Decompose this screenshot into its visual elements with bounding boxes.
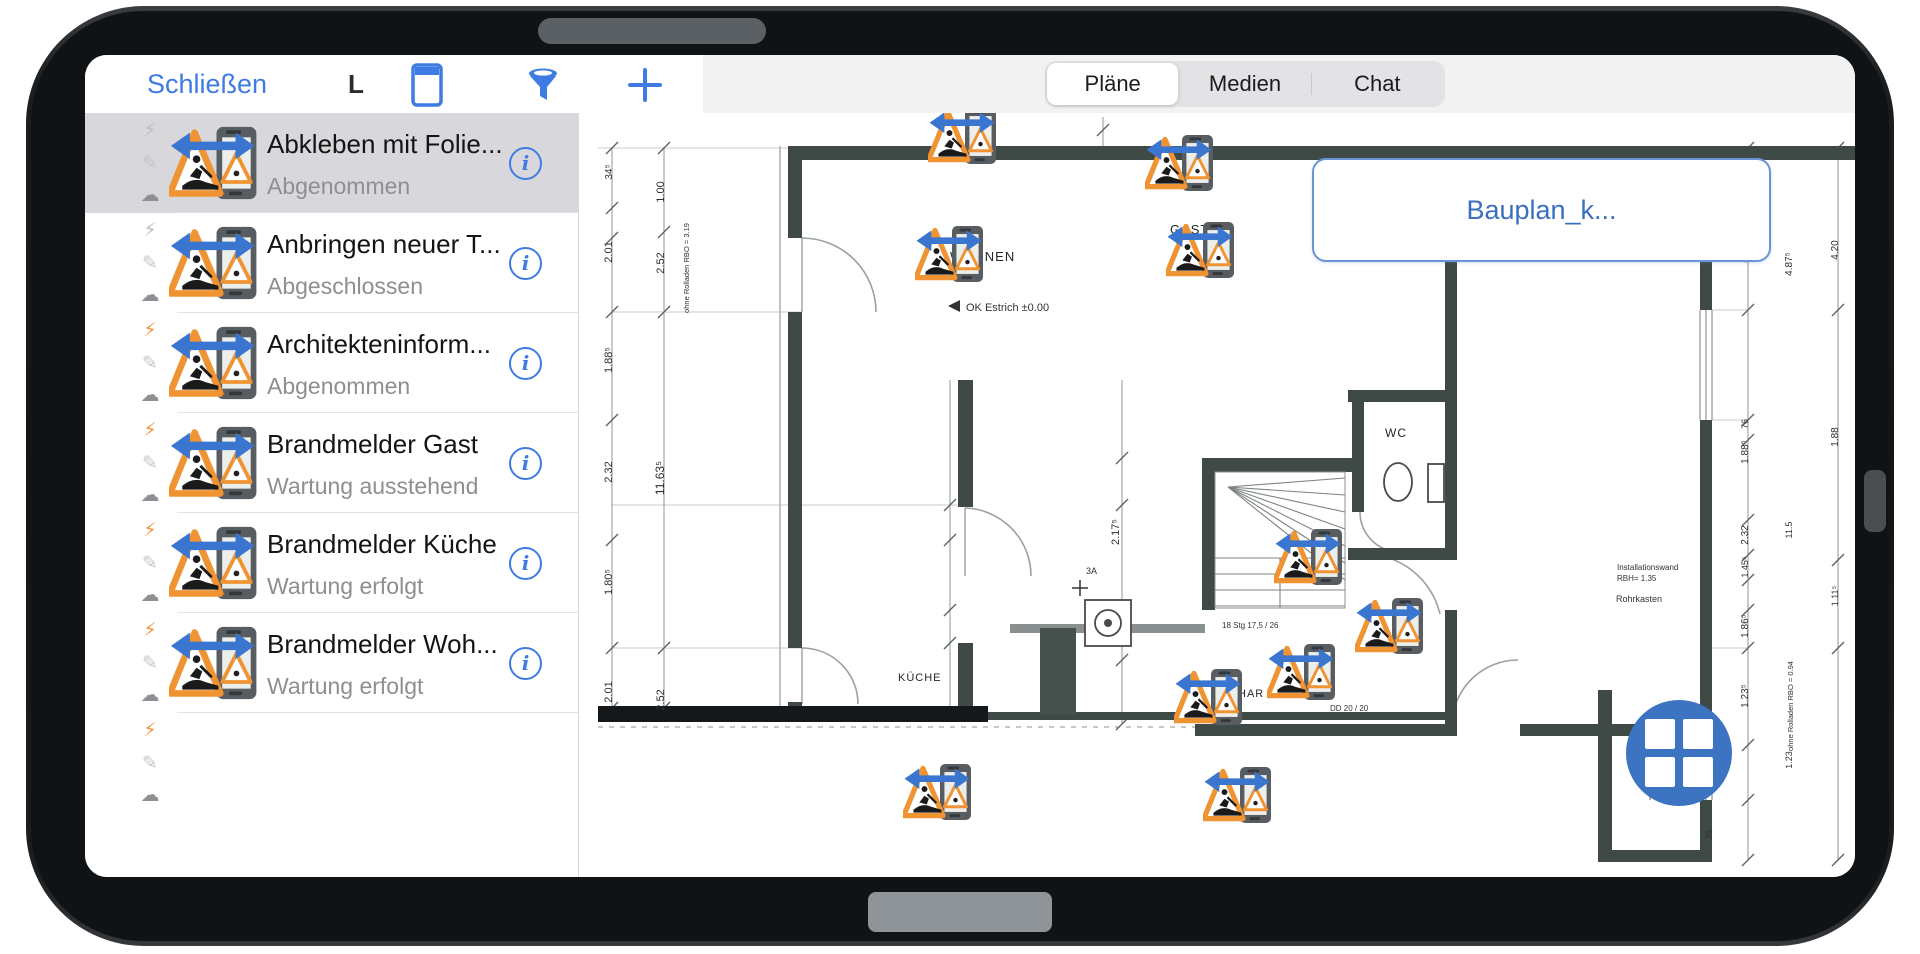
cloud-icon: ☁ [141,486,160,505]
dimension-label: 11.63⁵ [653,461,667,495]
sync-status-icons: ⚡ ✎ ☁ [137,421,163,505]
ticket-status: Wartung ausstehend [267,473,478,500]
ticket-status: Wartung erfolgt [267,673,423,700]
grid-icon [1645,719,1713,787]
top-bar: Schließen L PläneMedienChat [85,55,1855,114]
ticket-list-item[interactable]: ⚡ ✎ ☁ [85,713,578,813]
cloud-icon: ☁ [141,186,160,205]
add-button[interactable] [623,63,667,107]
plan-annotation: OK Estrich ±0.00 [966,302,1049,314]
ticket-list-item[interactable]: ⚡ ✎ ☁ Brandmelder Gast Wartung ausstehen… [85,413,578,513]
info-button[interactable] [509,347,542,380]
lightning-icon: ⚡ [143,221,156,240]
pencil-icon: ✎ [142,754,158,773]
dimension-label: 2.01 [603,681,615,702]
tab-bar: PläneMedienChat [1045,61,1445,107]
dimension-label: 2.32 [1740,525,1751,545]
lightning-icon: ⚡ [143,621,156,640]
info-button[interactable] [509,247,542,280]
cloud-icon: ☁ [141,586,160,605]
dimension-label: 2.32 [603,461,615,482]
ticket-type-icon [169,523,264,603]
ticket-status: Abgeschlossen [267,273,423,300]
plan-annotation: 18 Stg 17,5 / 26 [1222,621,1279,630]
ticket-status: Abgenommen [267,373,410,400]
ticket-type-icon [169,123,264,203]
sync-status-icons: ⚡ ✎ ☁ [137,521,163,605]
ticket-title: Brandmelder Gast [267,429,478,460]
pencil-icon: ✎ [142,454,158,473]
dimension-label: 2.17⁵ [1110,519,1122,545]
cloud-icon: ☁ [141,786,160,805]
lightning-icon: ⚡ [143,321,156,340]
ticket-list: ⚡ ✎ ☁ Abkleben mit Folie... Abgenommen ⚡… [85,113,578,877]
page: Schließen L PläneMedienChat [0,0,1920,954]
pencil-icon: ✎ [142,354,158,373]
close-button[interactable]: Schließen [147,55,267,113]
plan-annotation: RBH= 1.35 [1617,574,1657,583]
dimension-label: 1.11⁵ [1830,585,1840,606]
side-button[interactable] [1864,470,1886,532]
ticket-type-icon [169,323,264,403]
pencil-icon: ✎ [142,254,158,273]
room-label: WC [1385,426,1407,440]
dimension-label: 4.87⁵ [1784,252,1795,276]
phone-frame: Schließen L PläneMedienChat [26,6,1894,946]
ticket-status: Abgenommen [267,173,410,200]
info-button[interactable] [509,447,542,480]
plan-ticket-marker[interactable] [904,764,971,820]
pencil-icon: ✎ [142,554,158,573]
dimension-label: 1.88 [1830,427,1841,447]
fixtures [948,300,1444,646]
room-label: KÜCHE [898,672,942,684]
ticket-status: Wartung erfolgt [267,573,423,600]
dimension-label: 1.80⁵ [603,569,615,595]
dimension-label: 11.5 [1784,522,1794,539]
ticket-type-icon [169,623,264,703]
ticket-title: Brandmelder Küche [267,529,497,560]
ticket-title: Brandmelder Woh... [267,629,498,660]
sync-status-icons: ⚡ ✎ ☁ [137,321,163,405]
dimension-label: 1.23 [1784,751,1794,769]
cloud-icon: ☁ [141,686,160,705]
grid-view-button[interactable] [1626,700,1732,806]
pencil-icon: ✎ [142,154,158,173]
lightning-icon: ⚡ [143,121,156,140]
plan-annotation: 3A [1086,566,1097,576]
info-button[interactable] [509,547,542,580]
info-button[interactable] [509,647,542,680]
lightning-icon: ⚡ [143,721,156,740]
pencil-icon: ✎ [142,654,158,673]
ticket-list-item[interactable]: ⚡ ✎ ☁ Brandmelder Woh... Wartung erfolgt [85,613,578,713]
ticket-type-icon [169,423,264,503]
ticket-type-icon [169,223,264,303]
document-icon[interactable] [405,63,449,107]
dimension-label: 1.88⁵ [603,347,615,373]
plan-ticket-marker[interactable] [1146,135,1213,191]
info-button[interactable] [509,147,542,180]
sync-status-icons: ⚡ ✎ ☁ [137,621,163,705]
dimension-label: 4.20 [1830,240,1841,260]
filter-icon[interactable] [521,63,565,107]
plan-ticket-marker[interactable] [1268,644,1335,700]
sync-status-icons: ⚡ ✎ ☁ [137,721,163,805]
sync-status-icons: ⚡ ✎ ☁ [137,121,163,205]
plan-annotation: Rohrkasten [1616,594,1662,604]
dimension-label: 1.23⁵ [1740,684,1751,708]
app-screen: Schließen L PläneMedienChat [85,55,1855,877]
dimension-label: 76 [1740,419,1750,429]
sync-status-icons: ⚡ ✎ ☁ [137,221,163,305]
dimension-label: 34⁵ [604,164,615,179]
tab-medien[interactable]: Medien [1179,63,1310,105]
cloud-icon: ☁ [141,286,160,305]
dimension-label: 2.52 [655,689,667,710]
tab-chat[interactable]: Chat [1312,63,1443,105]
plan-ticket-marker[interactable] [1204,767,1271,823]
dimension-label: ohne Rolladen RBO = 0.94 [1786,661,1795,751]
lightning-icon: ⚡ [143,421,156,440]
plan-ticket-marker[interactable] [929,113,996,164]
plan-ticket-marker[interactable] [1175,669,1242,725]
cloud-icon: ☁ [141,386,160,405]
plan-ticket-marker[interactable] [1356,598,1423,654]
floor-plan[interactable]: WOHNENGASTWCKÜCHEHAROK Estrich ±0.00Inst… [579,113,1855,877]
plan-annotation: Installationswand [1617,563,1678,572]
plan-name-callout[interactable]: Bauplan_k... [1312,158,1771,262]
ticket-list-item[interactable]: ⚡ ✎ ☁ Anbringen neuer T... Abgeschlossen [85,213,578,313]
context-label: L [348,55,364,113]
ticket-title: Architekteninform... [267,329,491,360]
dimension-label: ohne Rolladen RBO = 3.19 [682,223,691,313]
bottom-speaker [868,892,1052,932]
ticket-title: Anbringen neuer T... [267,229,501,260]
plan-annotation: DD 20 / 20 [1330,704,1369,713]
dimension-label: 2.01 [603,241,615,262]
dimension-label: 1.88⁵ [1740,440,1751,464]
tab-pläne[interactable]: Pläne [1047,63,1178,105]
dimension-label: 1.00 [655,181,667,202]
ticket-list-item[interactable]: ⚡ ✎ ☁ Architekteninform... Abgenommen [85,313,578,413]
dimension-label: 2.52 [655,252,667,273]
dimension-label: 35 [1704,830,1714,840]
ticket-list-item[interactable]: ⚡ ✎ ☁ Abkleben mit Folie... Abgenommen [85,113,578,213]
dimension-label: 1.86⁵ [1740,614,1751,638]
ticket-list-item[interactable]: ⚡ ✎ ☁ Brandmelder Küche Wartung erfolgt [85,513,578,613]
lightning-icon: ⚡ [143,521,156,540]
dimension-label: 1.45⁵ [1740,556,1750,578]
speaker-grille [538,18,766,44]
ticket-title: Abkleben mit Folie... [267,129,503,160]
